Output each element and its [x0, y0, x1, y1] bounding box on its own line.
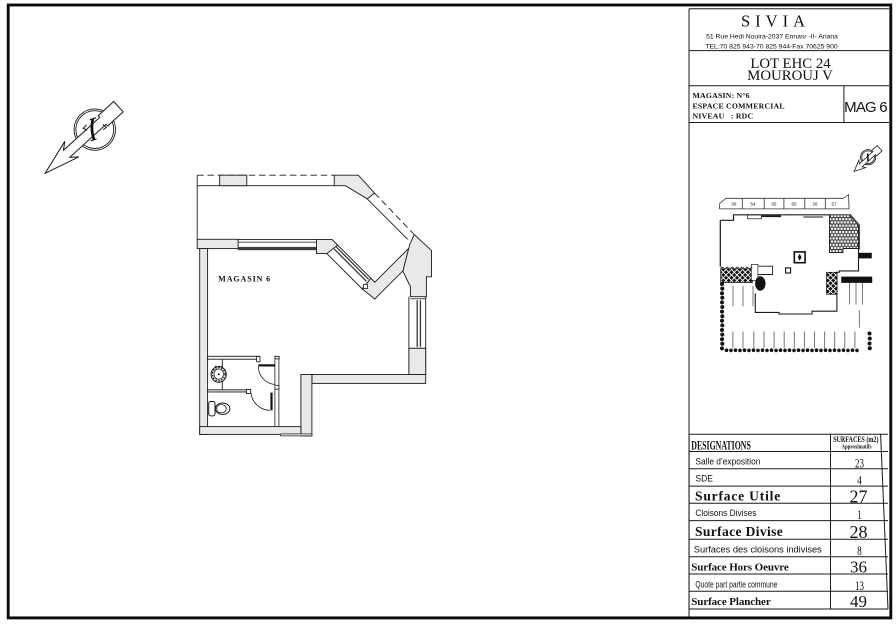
svg-text:Surfaces des cloisons indivise: Surfaces des cloisons indivises [694, 544, 822, 554]
svg-text:SURFACES (m2): SURFACES (m2) [833, 434, 879, 444]
svg-text:1: 1 [857, 508, 862, 522]
svg-text:54: 54 [751, 202, 756, 207]
svg-text:27: 27 [850, 486, 868, 506]
svg-text:56: 56 [772, 202, 777, 207]
svg-text:Surface Divise: Surface Divise [695, 524, 784, 539]
svg-text:MAG 6: MAG 6 [844, 99, 887, 116]
svg-text:Salle d’exposition: Salle d’exposition [695, 457, 760, 467]
svg-text:TEL:70 825 943-70 825 944-Fax: TEL:70 825 943-70 825 944-Fax 70625 900 [705, 43, 837, 50]
svg-text:28: 28 [850, 522, 868, 542]
svg-text:8: 8 [857, 544, 862, 558]
svg-text:Cloisons Divises: Cloisons Divises [695, 508, 756, 518]
svg-text:Quote part partie commune: Quote part partie commune [695, 579, 777, 589]
svg-text:ESPACE COMMERCIAL: ESPACE COMMERCIAL [693, 102, 785, 111]
svg-text:Surface Plancher: Surface Plancher [691, 596, 771, 608]
svg-text:MAGASIN: N°6: MAGASIN: N°6 [693, 91, 750, 100]
svg-text:23: 23 [855, 456, 864, 470]
svg-text:MOUROUJ V: MOUROUJ V [747, 68, 833, 84]
svg-text:SDE: SDE [695, 474, 713, 484]
svg-text:Approximatifs: Approximatifs [842, 445, 873, 451]
svg-text:51 Rue Hedi Nouira-2037 Ennasr: 51 Rue Hedi Nouira-2037 Ennasr -II- Aria… [706, 34, 838, 41]
svg-text:13: 13 [855, 579, 864, 593]
svg-text:SIVIA: SIVIA [741, 12, 810, 31]
svg-text:49: 49 [850, 592, 867, 611]
svg-text:60: 60 [792, 202, 797, 207]
svg-text:36: 36 [850, 558, 867, 577]
svg-text:NIVEAU : RDC: NIVEAU : RDC [693, 111, 754, 120]
svg-text:28: 28 [813, 202, 818, 207]
svg-text:58: 58 [732, 202, 737, 207]
svg-text:57: 57 [832, 202, 837, 207]
svg-text:MAGASIN 6: MAGASIN 6 [218, 275, 271, 284]
svg-text:Surface Hors Oeuvre: Surface Hors Oeuvre [691, 561, 789, 573]
svg-text:DESIGNATIONS: DESIGNATIONS [691, 437, 751, 452]
svg-text:Surface Utile: Surface Utile [695, 488, 781, 503]
